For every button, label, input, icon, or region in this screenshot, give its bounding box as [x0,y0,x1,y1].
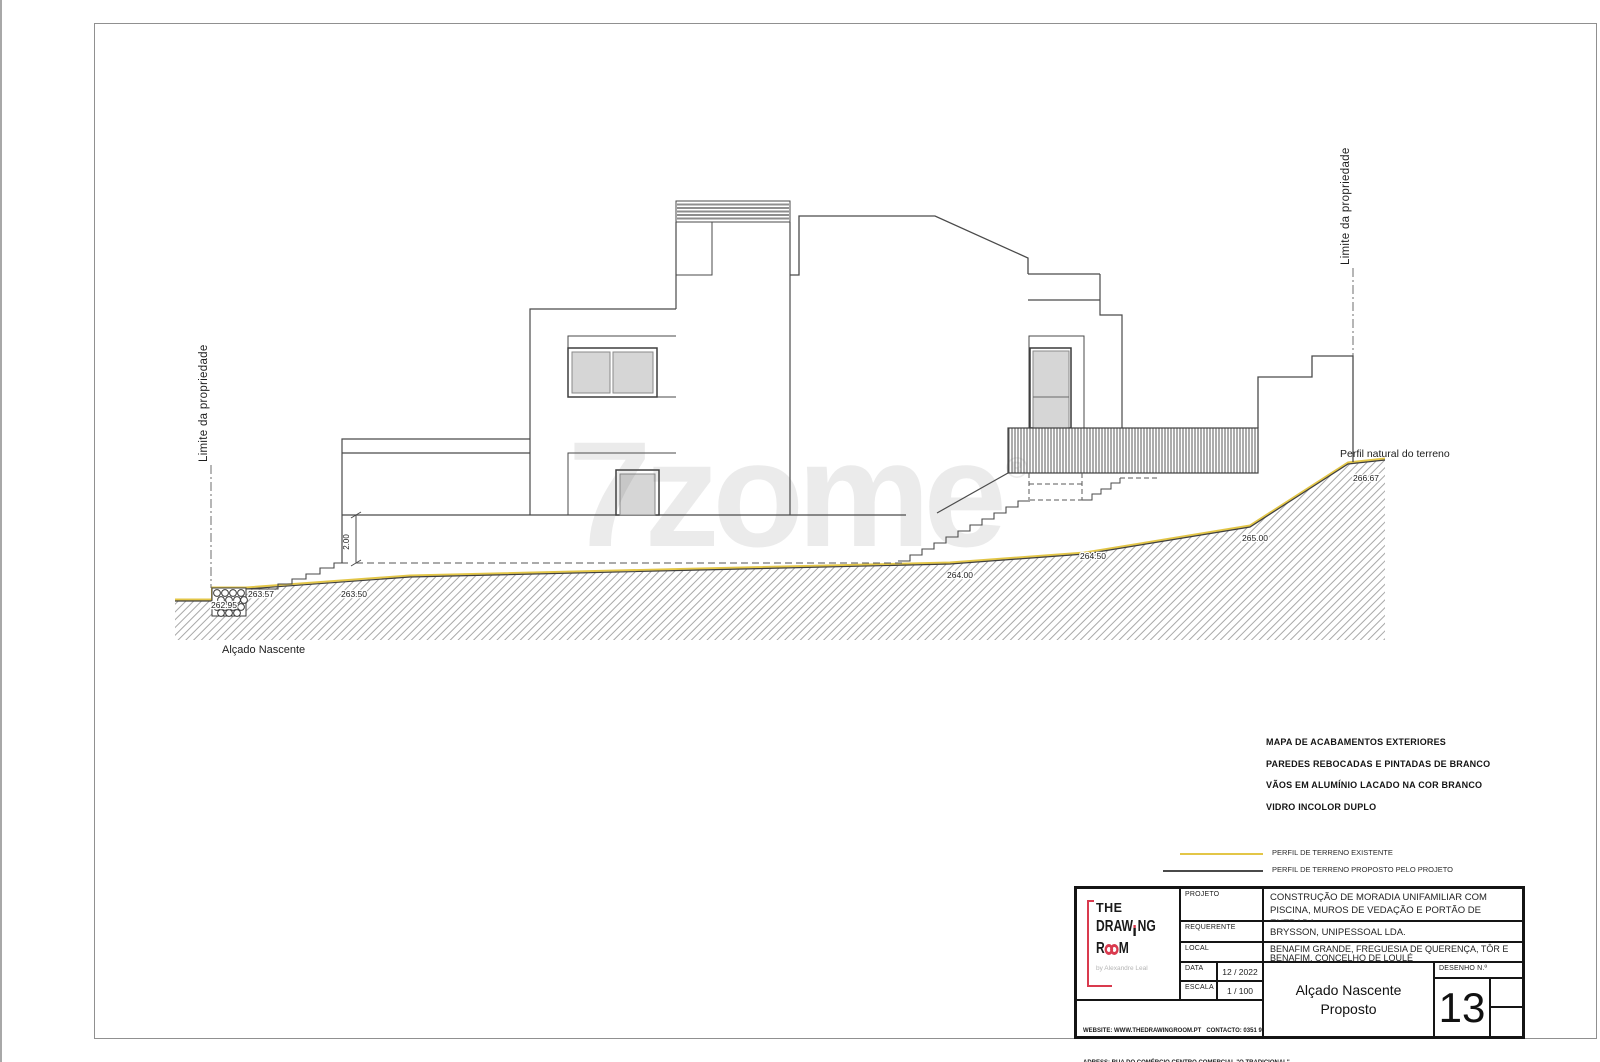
logo-text: M [1119,940,1129,958]
level-263-57: 263.57 [248,589,274,599]
logo-cell: THE DRAW NG R M by Alexandre Leal [1076,888,1180,1000]
value-local: BENAFIM GRANDE, FREGUESIA DE QUERENÇA, T… [1263,942,1523,962]
drawing-sheet: 7zome® [0,0,1600,1062]
level-264-50: 264.50 [1080,551,1106,561]
value-projeto: CONSTRUÇÃO DE MORADIA UNIFAMILIAR COM PI… [1263,888,1523,921]
property-limit-label-left: Limite da propriedade [198,344,210,462]
logo-text: NG [1138,918,1156,936]
logo-word-room: R M [1096,940,1129,958]
legend-label: PERFIL DE TERRENO PROPOSTO PELO PROJETO [1272,865,1453,874]
logo-word-the: THE [1096,901,1123,915]
proposed-terrain-swatch [1163,870,1263,872]
title-block: THE DRAW NG R M by Alexandre Leal WEBSIT… [1074,886,1525,1039]
label-escala: ESCALA [1180,981,1217,1000]
ground-door-left [616,470,659,515]
finishes-item: VÃOS EM ALUMÍNIO LACADO NA COR BRANCO [1266,780,1490,790]
label-local: LOCAL [1180,942,1263,962]
logo-word-drawing: DRAW NG [1096,918,1156,936]
logo-i-glyph [1134,925,1137,936]
logo-text: DRAW [1096,918,1133,936]
logo-tagline: by Alexandre Leal [1096,965,1148,972]
tower [676,201,790,515]
label-data: DATA [1180,962,1217,981]
level-265-00: 265.00 [1242,533,1268,543]
logo-ring-icon [1110,944,1119,955]
value-escala: 1 / 100 [1217,981,1263,1000]
slatted-fence [1008,428,1258,473]
logo-text: R [1096,940,1105,958]
footer-line: ADRESS: RUA DO COMÉRCIO CENTRO COMERCIAL… [1083,1058,1262,1062]
drawing-title-cell: Alçado Nascente Proposto [1263,962,1434,1037]
legend-label: PERFIL DE TERRENO EXISTENTE [1272,848,1393,857]
upper-window [568,348,657,397]
main-block [790,216,1122,428]
value-data: 12 / 2022 [1217,962,1263,981]
hidden-lines [1029,473,1157,500]
contact-cell: WEBSITE: WWW.THEDRAWINGROOM.PT CONTACTO:… [1076,1000,1263,1037]
dimension-2m [351,512,905,566]
label-requerente: REQUERENTE [1180,921,1263,942]
label-projeto: PROJETO [1180,888,1263,921]
level-262-95: 262.95 [211,600,237,610]
level-263-50: 263.50 [341,589,367,599]
label-desenho-numero: DESENHO N.º [1434,962,1523,978]
level-264-00: 264.00 [947,570,973,580]
finishes-item: PAREDES REBOCADAS E PINTADAS DE BRANCO [1266,759,1490,769]
ground-door-right [1030,348,1071,428]
logo-bracket [1087,900,1089,986]
drawing-number: 13 [1434,978,1490,1037]
logo-bracket [1087,985,1112,987]
finishes-notes: MAPA DE ACABAMENTOS EXTERIORES PAREDES R… [1266,737,1490,823]
level-266-67: 266.67 [1353,473,1379,483]
empty-revision-cell [1490,978,1523,1007]
finishes-item: VIDRO INCOLOR DUPLO [1266,802,1490,812]
property-limit-label-right: Limite da propriedade [1340,147,1352,265]
elevation-caption: Alçado Nascente [222,644,305,656]
i-bar [1134,928,1136,936]
existing-terrain-swatch [1180,853,1263,855]
footer-line: WEBSITE: WWW.THEDRAWINGROOM.PT CONTACTO:… [1083,1026,1262,1037]
drawing-title-line1: Alçado Nascente [1296,981,1402,1000]
right-boundary-wall [1258,356,1353,462]
logo-bracket [1087,900,1094,902]
finishes-title: MAPA DE ACABAMENTOS EXTERIORES [1266,737,1490,747]
value-requerente: BRYSSON, UNIPESSOAL LDA. [1263,921,1523,942]
dimension-label: 2.00 [342,534,351,550]
empty-revision-cell [1490,1007,1523,1037]
drawing-title-line2: Proposto [1320,1000,1376,1019]
natural-profile-label: Perfil natural do terreno [1340,448,1450,460]
